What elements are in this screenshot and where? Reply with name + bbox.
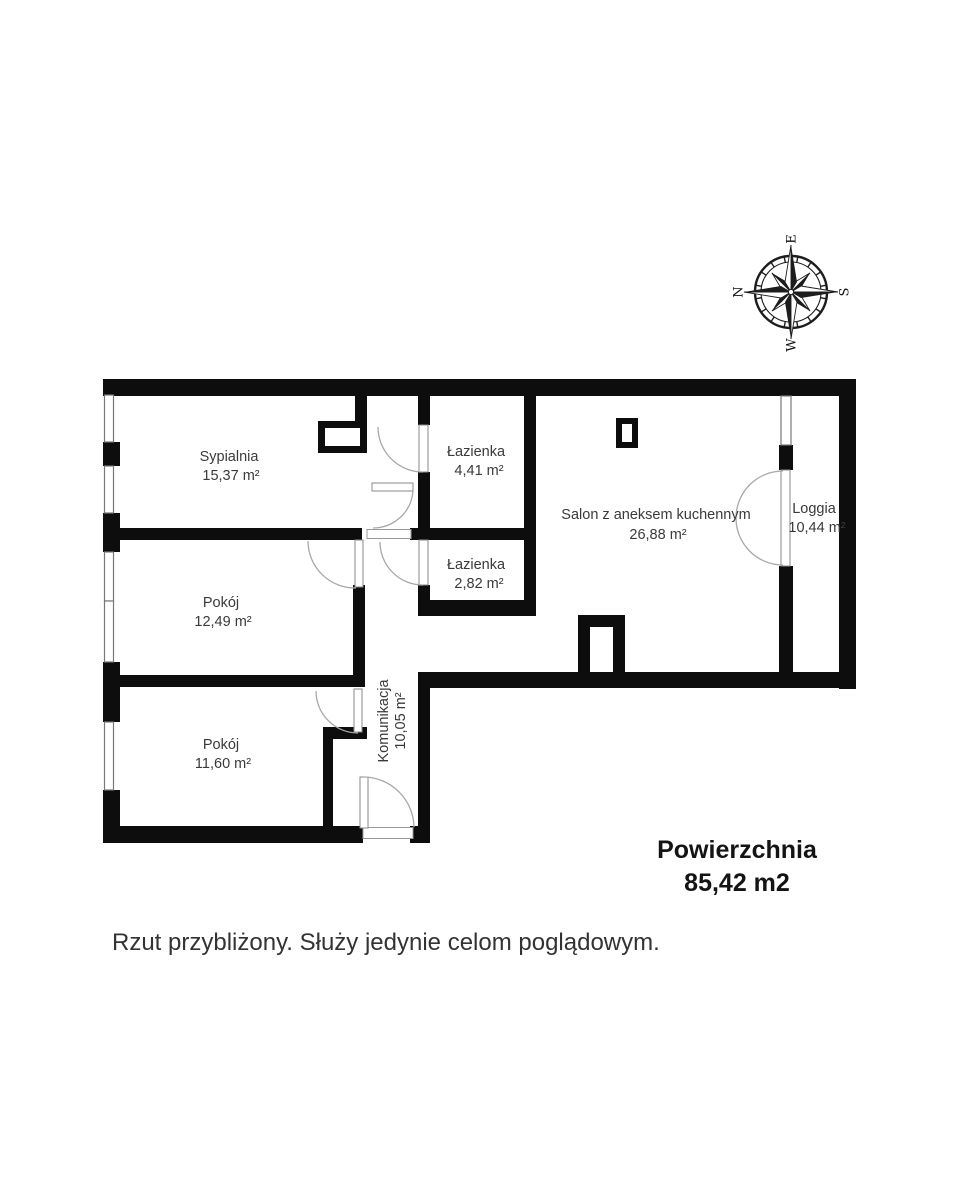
label-pokoj-dolny-area: 11,60 m² xyxy=(195,756,251,772)
wall-bath-divider xyxy=(418,528,536,540)
label-lazienka-gorna-area: 4,41 m² xyxy=(454,463,503,479)
total-area-block: Powierzchnia 85,42 m2 xyxy=(557,834,917,900)
total-area-label: Powierzchnia xyxy=(557,834,917,867)
wall-h2-pokoj-divider xyxy=(103,675,365,687)
threshold-vestibule-corridor xyxy=(367,530,411,539)
window-loggia-partition xyxy=(781,396,791,445)
floor-plan: N E S W xyxy=(0,0,960,1200)
wall-left-corner-top xyxy=(103,379,120,396)
floor-plan-page: N E S W xyxy=(0,0,960,1200)
label-sypialnia-name: Sypialnia xyxy=(200,449,260,465)
threshold-entrance xyxy=(363,828,413,839)
window-sypialnia-2 xyxy=(105,466,114,513)
wall-loggia-partition-low xyxy=(779,566,793,674)
door-pokoj-sredni xyxy=(308,540,363,588)
wall-bottom-left xyxy=(103,826,363,843)
label-komunikacja-area: 10,05 m² xyxy=(393,692,409,749)
door-lazienka-gorna xyxy=(378,425,428,472)
compass-rose-icon: N E S W xyxy=(732,234,853,351)
window-pokoj-dolny xyxy=(105,722,114,790)
wall-bottom-salon xyxy=(418,672,856,688)
wall-corridor-right xyxy=(418,675,430,843)
label-lazienka-gorna-name: Łazienka xyxy=(447,444,506,460)
wall-left-chunk-3 xyxy=(103,662,120,722)
wall-left-corner-bottom xyxy=(103,790,120,843)
total-area-value: 85,42 m2 xyxy=(557,867,917,900)
window-sypialnia-1 xyxy=(105,395,114,442)
label-loggia-name: Loggia xyxy=(792,501,836,517)
wardrobe xyxy=(318,421,367,453)
wall-corridor-left-upper xyxy=(353,585,365,677)
doors xyxy=(308,425,790,828)
compass-letter-n: N xyxy=(732,286,747,297)
door-entrance xyxy=(360,777,414,828)
label-pokoj-sredni-name: Pokój xyxy=(203,595,239,611)
compass-hub xyxy=(788,289,793,294)
label-sypialnia-area: 15,37 m² xyxy=(202,468,259,484)
wall-bath-right xyxy=(524,396,536,616)
door-lazienka-dolna xyxy=(380,540,428,585)
window-pokoj-sredni-2 xyxy=(105,601,114,662)
door-sypialnia xyxy=(372,483,413,528)
label-salon-area: 26,88 m² xyxy=(629,527,686,543)
door-pokoj-dolny xyxy=(316,689,362,733)
compass-letter-e: E xyxy=(785,234,800,244)
label-komunikacja-name: Komunikacja xyxy=(376,679,392,763)
label-loggia-area: 10,44 m² xyxy=(788,520,845,536)
label-pokoj-dolny-name: Pokój xyxy=(203,737,239,753)
disclaimer-text: Rzut przybliżony. Służy jedynie celom po… xyxy=(112,929,660,957)
label-salon-name: Salon z aneksem kuchennym xyxy=(561,507,750,523)
label-lazienka-dolna-name: Łazienka xyxy=(447,557,506,573)
wall-left-chunk-1 xyxy=(103,442,120,466)
wall-h1-sypialnia-pokoj xyxy=(103,528,362,540)
wall-sypialnia-right xyxy=(355,396,367,423)
duct-shaft xyxy=(616,418,638,448)
wall-loggia-partition-mid xyxy=(779,445,793,470)
wall-top xyxy=(103,379,856,396)
wall-h1-right-chunk xyxy=(410,528,430,540)
window-pokoj-sredni-1 xyxy=(105,552,114,601)
label-pokoj-sredni-area: 12,49 m² xyxy=(194,614,251,630)
wall-bath-bottom xyxy=(418,600,536,616)
wall-bath-left-a xyxy=(418,396,430,425)
compass-letter-s: S xyxy=(838,288,853,297)
compass-letter-w: W xyxy=(785,338,800,352)
label-lazienka-dolna-area: 2,82 m² xyxy=(454,576,503,592)
wall-corridor-left-lower xyxy=(323,727,333,828)
